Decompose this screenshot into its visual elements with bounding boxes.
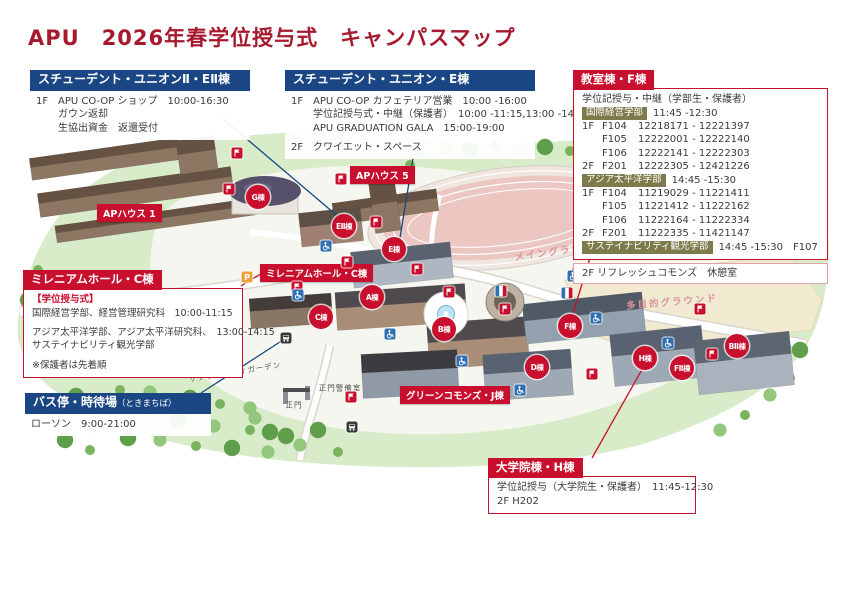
box-line-text: F201 [602,227,638,240]
box-line-text: F105 [602,200,638,213]
box-line-text: ローソン 9:00-21:00 [31,418,136,431]
box-line: 2FF20112222305 - 12421226 [582,160,819,173]
infobox-millennium-hall-body: 【学位授与式】国際経営学部、経営管理研究科 10:00-11:15アジア太平洋学… [23,288,243,378]
box-line: 【学位授与式】 [32,293,234,306]
box-line-text: 11222164 - 11222334 [638,214,750,227]
box-line-text: 14:45 -15:30 [672,174,736,187]
box-line-text: 1F [582,187,602,200]
box-line: ローソン 9:00-21:00 [31,418,205,431]
box-line-text: 11219029 - 11221411 [638,187,750,200]
department-chip: 国際経営学部 [582,107,647,120]
box-line-text: 14:45 -15:30 F107 [719,241,818,254]
box-line-text: アジア太平洋学部、アジア太平洋研究科、 13:00-14:15 [32,326,275,339]
box-line-text: 2F [582,227,602,240]
box-line-text: F105 [602,133,638,146]
department-chip: サステイナビリティ観光学部 [582,241,713,254]
box-line: 2FF20111222335 - 11421147 [582,227,819,240]
box-line-text: F106 [602,214,638,227]
infobox-classroom-f: 教室棟・F棟 学位記授与・中継（学部生・保護者）国際経営学部11:45 -12:… [573,70,828,284]
box-line: サステイナビリティ観光学部14:45 -15:30 F107 [582,241,819,254]
box-line: アジア太平洋学部14:45 -15:30 [582,174,819,187]
box-line: 学位記授与（大学院生・保護者） 11:45-12:30 [497,481,687,494]
box-line: 国際経営学部11:45 -12:30 [582,107,819,120]
infobox-classroom-f-header: 教室棟・F棟 [573,70,654,90]
infobox-student-union-e-body: 1FAPU CO-OP カフェテリア営業 10:00 -16:00学位記授与式・… [285,91,535,160]
box-line: APU GRADUATION GALA 15:00-19:00 [291,122,529,135]
box-line-text: 12222001 - 12222140 [638,133,750,146]
box-line-text: クワイエット・スペース [313,141,422,154]
infobox-student-union-e-header: スチューデント・ユニオン・E棟 [285,70,535,91]
box-line: 2F H202 [497,495,687,508]
box-line-text: 12218171 - 12221397 [638,120,750,133]
box-line-text: 学位記授与（大学院生・保護者） 11:45-12:30 [497,481,713,494]
infobox-student-union-2: スチューデント・ユニオンⅡ・EⅡ棟 1FAPU CO-OP ショップ 10:00… [30,70,250,140]
box-line-text [582,200,602,213]
box-line: 学位記授与・中継（学部生・保護者） [582,93,819,106]
box-line: 1FAPU CO-OP カフェテリア営業 10:00 -16:00 [291,95,529,108]
box-line-text: 1F [36,95,58,108]
box-line-text: 国際経営学部、経営管理研究科 10:00-11:15 [32,307,233,320]
box-line-text [582,214,602,227]
infobox-student-union-2-header: スチューデント・ユニオンⅡ・EⅡ棟 [30,70,250,91]
box-line-text: 11221412 - 11222162 [638,200,750,213]
box-line-text: F106 [602,147,638,160]
box-line-text: 1F [291,95,313,108]
infobox-millennium-hall-header: ミレニアムホール・C棟 [23,270,162,290]
box-line-text: サステイナビリティ観光学部 [32,339,155,352]
box-line-text: 学位記授与式・中継（保護者） 10:00 -11:15,13:00 -14:15 [313,108,590,121]
box-line: アジア太平洋学部、アジア太平洋研究科、 13:00-14:15 [32,326,234,339]
box-line: 生協出資金 返還受付 [36,122,244,135]
infobox-bus-stop-body: ローソン 9:00-21:00 [25,414,211,436]
box-line-text: 学位記授与・中継（学部生・保護者） [582,93,752,106]
box-line-text: 12222141 - 12222303 [638,147,750,160]
box-line-text: 1F [582,120,602,133]
box-line: F10512222001 - 12222140 [582,133,819,146]
box-line-text: 【学位授与式】 [32,293,99,306]
box-line-text: ガウン返却 [58,108,108,121]
infobox-bus-stop-title: バス停・時待場 [33,395,117,409]
campus-map-page: G棟EⅡ棟E棟C棟A棟B棟D棟F棟H棟FⅡ棟BⅡ棟APハウス 1APハウス 5ミ… [0,0,842,595]
infobox-graduate-h-body: 学位記授与（大学院生・保護者） 11:45-12:302F H202 [488,476,696,514]
box-line: 学位記授与式・中継（保護者） 10:00 -11:15,13:00 -14:15 [291,108,529,121]
box-line-text: 2F [291,141,313,154]
box-line: ガウン返却 [36,108,244,121]
box-line: 2Fクワイエット・スペース [291,141,529,154]
page-title: APU 2026年春学位授与式 キャンパスマップ [28,22,516,52]
infobox-student-union-e: スチューデント・ユニオン・E棟 1FAPU CO-OP カフェテリア営業 10:… [285,70,535,159]
infobox-student-union-2-body: 1FAPU CO-OP ショップ 10:00-16:30ガウン返却生協出資金 返… [30,91,250,140]
box-line: F10612222141 - 12222303 [582,147,819,160]
infobox-classroom-f-body: 学位記授与・中継（学部生・保護者）国際経営学部11:45 -12:301FF10… [573,88,828,260]
box-line: F10611222164 - 11222334 [582,214,819,227]
infobox-graduate-h: 大学院棟・H棟 学位記授与（大学院生・保護者） 11:45-12:302F H2… [488,458,696,514]
box-line-text: APU CO-OP ショップ 10:00-16:30 [58,95,229,108]
infobox-classroom-f-note: 2F リフレッシュコモンズ 休憩室 [573,263,828,284]
infobox-bus-stop-header: バス停・時待場（ときまちば） [25,393,211,414]
box-line-text: 11222335 - 11421147 [638,227,750,240]
box-line: 1FF10411219029 - 11221411 [582,187,819,200]
box-line-text: 生協出資金 返還受付 [58,122,158,135]
box-line: 国際経営学部、経営管理研究科 10:00-11:15 [32,307,234,320]
box-line: ※保護者は先着順 [32,359,234,372]
box-line: 1FAPU CO-OP ショップ 10:00-16:30 [36,95,244,108]
box-line-text: 2F [582,160,602,173]
box-line-text: APU GRADUATION GALA 15:00-19:00 [313,122,505,135]
box-line-text: ※保護者は先着順 [32,359,106,372]
infobox-millennium-hall: ミレニアムホール・C棟 【学位授与式】国際経営学部、経営管理研究科 10:00-… [23,270,243,378]
box-line-text: APU CO-OP カフェテリア営業 10:00 -16:00 [313,95,527,108]
infobox-bus-stop-subtitle: （ときまちば） [117,399,177,409]
box-line-text: F104 [602,120,638,133]
box-line: 1FF10412218171 - 12221397 [582,120,819,133]
box-line: サステイナビリティ観光学部 [32,339,234,352]
box-line-text: F201 [602,160,638,173]
infobox-bus-stop: バス停・時待場（ときまちば） ローソン 9:00-21:00 [25,393,211,436]
box-line-text [582,133,602,146]
infobox-graduate-h-header: 大学院棟・H棟 [488,458,583,478]
box-line: F10511221412 - 11222162 [582,200,819,213]
department-chip: アジア太平洋学部 [582,174,666,187]
box-line-text: F104 [602,187,638,200]
box-line-text: 11:45 -12:30 [653,107,717,120]
box-line-text: 12222305 - 12421226 [638,160,750,173]
box-line-text [582,147,602,160]
box-line-text: 2F H202 [497,495,539,508]
